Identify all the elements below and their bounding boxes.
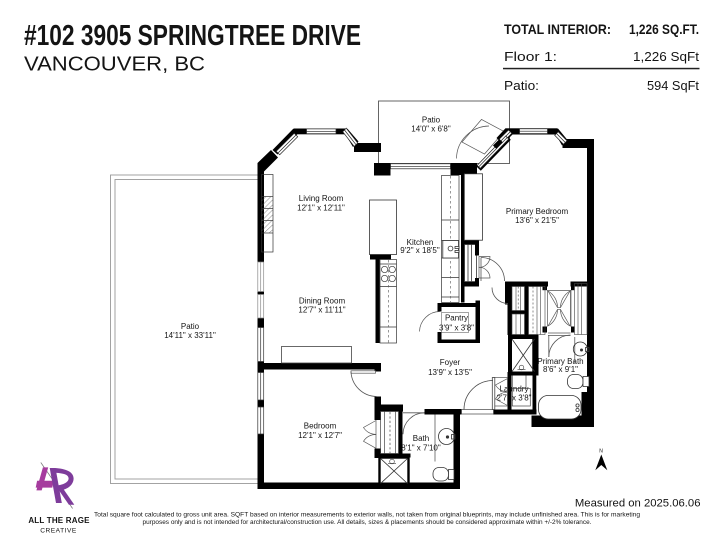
svg-text:Bath: Bath [413, 434, 429, 443]
svg-text:#102 3905 SPRINGTREE DRIVE: #102 3905 SPRINGTREE DRIVE [24, 20, 361, 52]
svg-text:12'1" x 12'7": 12'1" x 12'7" [298, 431, 342, 440]
svg-text:Laundry: Laundry [500, 385, 529, 394]
svg-text:VANCOUVER, BC: VANCOUVER, BC [24, 53, 205, 76]
svg-text:2'7" x 3'8": 2'7" x 3'8" [497, 394, 532, 403]
svg-text:14'11" x 33'11": 14'11" x 33'11" [164, 331, 216, 340]
svg-text:13'9" x 13'5": 13'9" x 13'5" [428, 368, 472, 377]
svg-text:Patio: Patio [422, 116, 441, 125]
svg-text:ALL THE RAGE: ALL THE RAGE [28, 516, 90, 525]
svg-text:12'1" x 12'11": 12'1" x 12'11" [297, 204, 345, 213]
svg-text:Patio:: Patio: [504, 78, 539, 93]
svg-text:Pantry: Pantry [445, 314, 468, 323]
svg-text:Measured on 2025.06.06: Measured on 2025.06.06 [575, 498, 701, 510]
svg-text:14'0" x 6'8": 14'0" x 6'8" [411, 125, 451, 134]
svg-text:Patio: Patio [181, 322, 200, 331]
svg-text:1,226 SQ.FT.: 1,226 SQ.FT. [629, 22, 699, 37]
svg-text:1,226 SqFt: 1,226 SqFt [633, 49, 699, 64]
svg-text:CREATIVE: CREATIVE [40, 528, 77, 535]
svg-text:Living Room: Living Room [299, 194, 344, 203]
svg-text:Dining Room: Dining Room [299, 297, 346, 306]
svg-text:9'2" x 18'5": 9'2" x 18'5" [400, 246, 440, 255]
svg-text:12'7" x 11'11": 12'7" x 11'11" [298, 306, 345, 315]
svg-text:Foyer: Foyer [440, 358, 461, 367]
svg-text:TOTAL INTERIOR:: TOTAL INTERIOR: [504, 22, 611, 37]
svg-text:Floor 1:: Floor 1: [504, 49, 557, 64]
svg-text:594 SqFt: 594 SqFt [647, 78, 699, 93]
svg-text:Total square foot calculated t: Total square foot calculated to gross un… [94, 512, 641, 519]
svg-text:Primary Bedroom: Primary Bedroom [506, 207, 569, 216]
svg-text:purposes only and is not inten: purposes only and is not intended for ar… [143, 519, 592, 526]
svg-text:Bedroom: Bedroom [304, 422, 337, 431]
svg-text:3'9" x 3'8": 3'9" x 3'8" [439, 324, 474, 333]
svg-text:N: N [599, 449, 603, 455]
svg-text:8'6" x 9'1": 8'6" x 9'1" [543, 365, 578, 374]
svg-text:13'6" x 21'5": 13'6" x 21'5" [515, 216, 559, 225]
